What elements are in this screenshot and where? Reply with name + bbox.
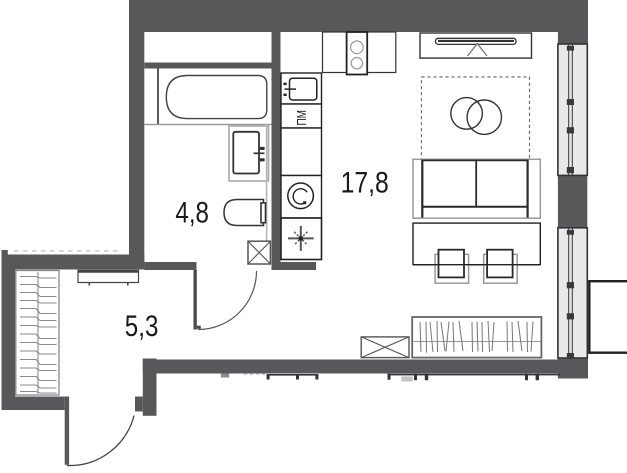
svg-text:4,8: 4,8 [175, 197, 209, 230]
svg-text:17,8: 17,8 [341, 167, 389, 200]
svg-text:5,3: 5,3 [125, 310, 159, 343]
svg-text:ПМ: ПМ [294, 110, 309, 126]
